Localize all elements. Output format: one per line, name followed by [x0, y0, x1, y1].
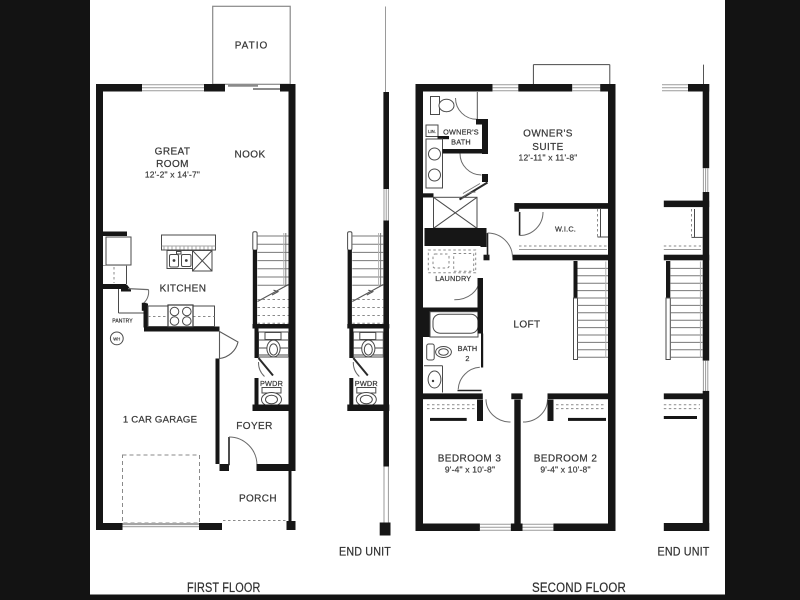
svg-text:PATIO: PATIO [235, 41, 269, 52]
svg-text:KITCHEN: KITCHEN [160, 284, 207, 295]
svg-text:END UNIT: END UNIT [658, 547, 710, 559]
svg-text:OWNER'S: OWNER'S [523, 129, 573, 140]
svg-text:LIN.: LIN. [428, 129, 436, 134]
svg-text:12'-2" x 14'-7": 12'-2" x 14'-7" [145, 170, 200, 180]
svg-text:W.I.C.: W.I.C. [555, 225, 576, 234]
svg-text:PWDR: PWDR [355, 379, 378, 388]
svg-text:FIRST FLOOR: FIRST FLOOR [187, 580, 261, 595]
svg-text:OWNER'S: OWNER'S [443, 128, 479, 137]
svg-text:9'-4" x 10'-8": 9'-4" x 10'-8" [540, 465, 590, 475]
svg-text:WH: WH [113, 336, 120, 341]
svg-text:PWDR: PWDR [260, 379, 283, 388]
svg-text:BEDROOM 2: BEDROOM 2 [534, 454, 598, 465]
svg-text:ROOM: ROOM [156, 159, 189, 170]
svg-text:2: 2 [465, 354, 469, 363]
svg-text:1 CAR GARAGE: 1 CAR GARAGE [123, 415, 197, 426]
svg-text:12'-11" x 11'-8": 12'-11" x 11'-8" [519, 153, 578, 163]
svg-text:9'-4" x 10'-8": 9'-4" x 10'-8" [445, 465, 495, 475]
svg-text:BATH: BATH [458, 344, 478, 353]
svg-text:GREAT: GREAT [155, 147, 191, 158]
svg-text:LOFT: LOFT [513, 320, 540, 331]
svg-text:PANTRY: PANTRY [112, 319, 133, 325]
svg-text:FOYER: FOYER [236, 421, 272, 432]
svg-text:END UNIT: END UNIT [339, 547, 391, 559]
svg-text:PORCH: PORCH [239, 494, 277, 505]
svg-text:LAUNDRY: LAUNDRY [435, 274, 471, 283]
svg-text:BEDROOM 3: BEDROOM 3 [438, 454, 502, 465]
svg-text:BATH: BATH [451, 138, 471, 147]
svg-text:NOOK: NOOK [234, 150, 265, 161]
svg-text:SECOND FLOOR: SECOND FLOOR [532, 580, 626, 595]
svg-text:SUITE: SUITE [532, 142, 563, 153]
